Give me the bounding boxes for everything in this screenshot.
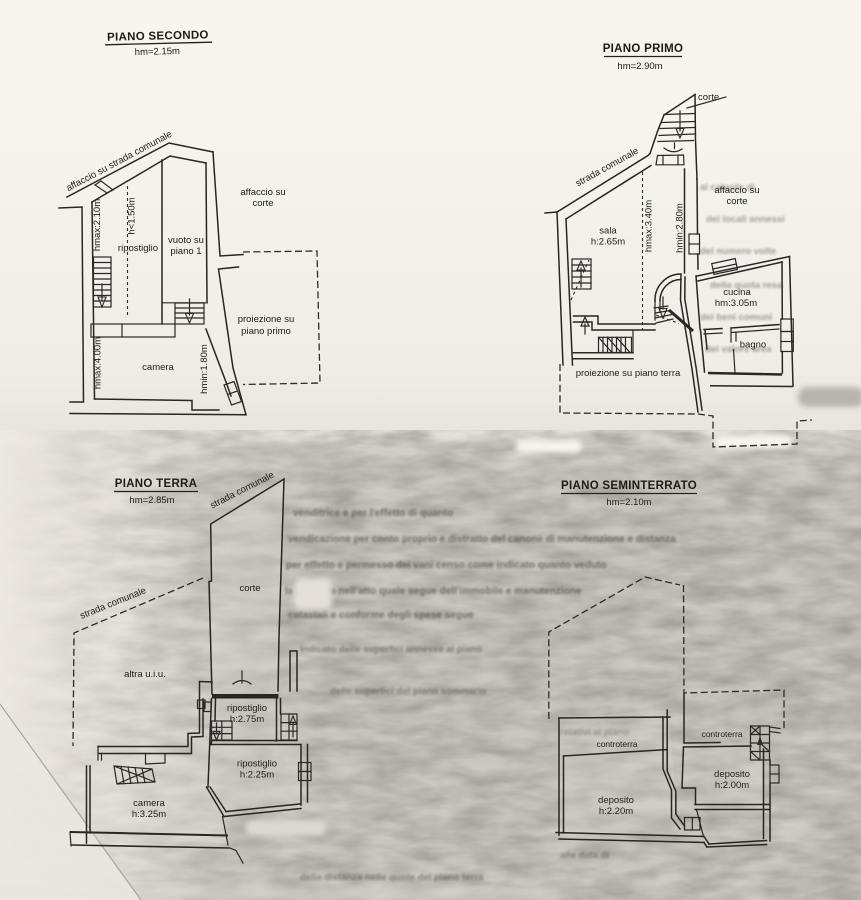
svg-text:h:2.65m: h:2.65m (591, 237, 625, 248)
svg-text:affaccio su: affaccio su (714, 185, 759, 196)
svg-text:altra u.i.u.: altra u.i.u. (124, 669, 166, 680)
svg-text:h:2.75m: h:2.75m (230, 714, 264, 725)
svg-text:cucina: cucina (723, 287, 751, 298)
svg-text:hmax:3.40m: hmax:3.40m (644, 200, 655, 252)
svg-text:piano primo: piano primo (241, 326, 291, 337)
svg-text:hm:3.05m: hm:3.05m (715, 298, 757, 309)
svg-text:h:2.20m: h:2.20m (599, 806, 633, 817)
svg-text:proiezione su: proiezione su (238, 314, 295, 325)
svg-text:hmax:2.10m: hmax:2.10m (92, 199, 103, 251)
svg-text:corte: corte (252, 198, 273, 209)
svg-text:hmin:2.80m: hmin:2.80m (675, 203, 686, 253)
svg-text:PIANO PRIMO: PIANO PRIMO (603, 43, 684, 55)
svg-text:proiezione su piano terra: proiezione su piano terra (576, 368, 681, 379)
svg-text:vendicazione per conto proprio: vendicazione per conto proprio e distrat… (288, 534, 676, 545)
svg-text:controterra: controterra (701, 729, 742, 739)
svg-text:PIANO TERRA: PIANO TERRA (115, 478, 198, 490)
svg-text:ripostiglio: ripostiglio (118, 243, 158, 254)
svg-text:PIANO SECONDO: PIANO SECONDO (107, 29, 209, 43)
svg-text:sala: sala (599, 226, 617, 237)
svg-text:camera: camera (142, 362, 174, 373)
svg-text:ripostiglio: ripostiglio (227, 703, 267, 714)
svg-text:corte: corte (239, 583, 260, 594)
svg-text:indicato delle superfici annes: indicato delle superfici annesse al pian… (300, 644, 482, 655)
svg-text:venditrice e per l'effetto di: venditrice e per l'effetto di quanto (293, 508, 453, 519)
svg-text:h:2.25m: h:2.25m (240, 770, 274, 781)
svg-text:hmax:4.00m: hmax:4.00m (93, 337, 104, 389)
svg-text:delle superfici del piano somm: delle superfici del piano sommario (330, 686, 486, 697)
svg-text:per effetto e permesso dei van: per effetto e permesso dei vani censo co… (286, 560, 607, 571)
svg-text:catastali e conforme degli spe: catastali e conforme degli spese segue (288, 610, 474, 621)
svg-text:hmin:1.80m: hmin:1.80m (199, 344, 210, 394)
svg-text:della distanza nelle quote del: della distanza nelle quote del piano ter… (300, 872, 484, 883)
svg-text:ai suoi 11/12, relativo: ai suoi 11/12, relativo (300, 469, 395, 480)
svg-text:bagno: bagno (740, 340, 766, 351)
svg-text:affaccio su: affaccio su (240, 187, 285, 198)
svg-text:alla data di: alla data di (560, 850, 609, 861)
svg-text:del numero volte: del numero volte (700, 246, 776, 257)
svg-text:hm=2.10m: hm=2.10m (606, 497, 651, 508)
svg-text:piano 1: piano 1 (170, 246, 201, 257)
svg-text:dei beni comuni: dei beni comuni (700, 312, 772, 323)
svg-text:h:3.25m: h:3.25m (132, 809, 166, 820)
svg-text:h:2.00m: h:2.00m (715, 780, 749, 791)
svg-text:dei locali annessi: dei locali annessi (706, 214, 785, 225)
svg-text:ripostiglio: ripostiglio (237, 759, 277, 770)
svg-text:deposito: deposito (714, 769, 750, 780)
svg-text:deposito: deposito (598, 795, 634, 806)
svg-text:controterra: controterra (596, 739, 637, 749)
svg-text:vuoto su: vuoto su (168, 235, 204, 246)
svg-text:h<1.50m: h<1.50m (127, 197, 138, 234)
svg-text:hm=2.90m: hm=2.90m (617, 61, 662, 72)
svg-text:camera: camera (133, 798, 165, 809)
svg-text:hm=2.15m: hm=2.15m (135, 46, 180, 58)
svg-text:PIANO SEMINTERRATO: PIANO SEMINTERRATO (561, 480, 697, 492)
svg-text:corte: corte (726, 196, 747, 207)
svg-text:hm=2.85m: hm=2.85m (129, 495, 174, 506)
